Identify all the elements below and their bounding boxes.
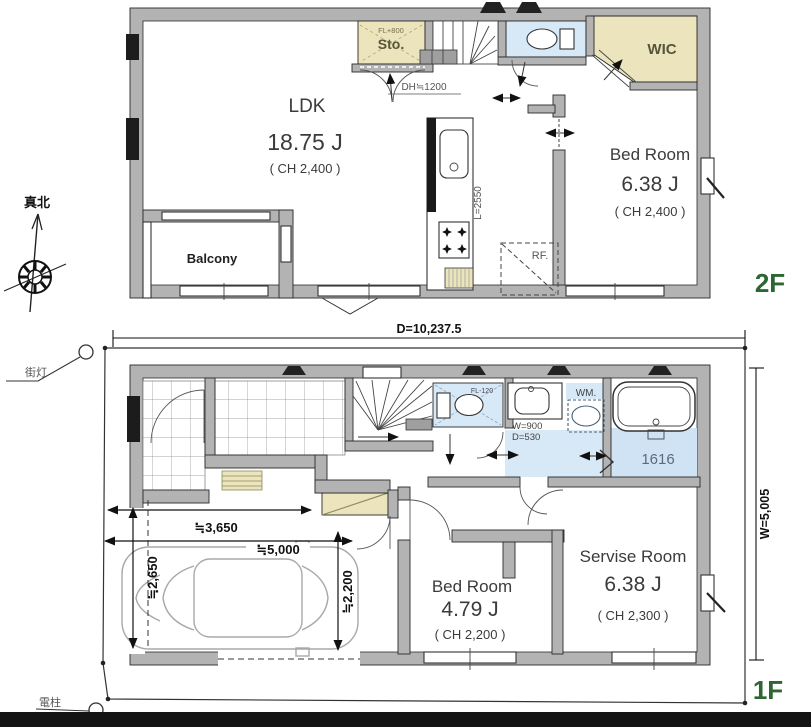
floor-1-plan: FL-120 W=900 D=530 WM. 1616 — [105, 365, 783, 705]
wm-label: WM. — [576, 388, 597, 399]
f1-stair-landing — [406, 419, 432, 430]
service-room-size: 6.38 J — [604, 573, 661, 596]
storage-label: Sto. — [378, 36, 404, 52]
kitchen-counter-length: L=2550 — [473, 186, 484, 220]
bottom-bar — [0, 712, 811, 727]
floor-2-plan: LDK 18.75 J ( CH 2,400 ) Bed Room 6.38 J… — [126, 2, 785, 314]
dim-5000-label: ≒5,000 — [256, 542, 299, 557]
entrance-step — [222, 471, 262, 490]
f2-eave-mark — [322, 298, 378, 314]
storage-floor-level: FL+800 — [378, 26, 404, 35]
basin-depth-label: D=530 — [512, 432, 540, 443]
f2-bedroom-name: Bed Room — [610, 145, 690, 164]
ldk-size: 18.75 J — [267, 129, 342, 155]
streetlight-symbol — [6, 345, 93, 381]
toilet-floor-level: FL-120 — [471, 388, 493, 395]
dim-3650-label: ≒3,650 — [194, 520, 237, 535]
floor-plan-drawing: 真北 — [0, 0, 811, 727]
f1-bedroom-ceiling-height: ( CH 2,200 ) — [435, 627, 506, 642]
balcony-label: Balcony — [187, 251, 238, 266]
fridge-label: RF. — [532, 250, 549, 262]
ldk-name: LDK — [289, 96, 326, 117]
washbasin — [508, 383, 562, 419]
ldk-ceiling-height: ( CH 2,400 ) — [270, 161, 341, 176]
f2-kitchen — [427, 118, 473, 290]
f1-bedroom-name: Bed Room — [432, 577, 512, 596]
service-room-name: Servise Room — [580, 547, 687, 566]
streetlight-label: 街灯 — [25, 365, 47, 379]
basin-width-label: W=900 — [512, 421, 542, 432]
floor-2-label: 2F — [755, 268, 785, 298]
roof-vent-icon — [480, 2, 506, 13]
true-north-label: 真北 — [24, 195, 50, 210]
depth-dimension-label: D=10,237.5 — [397, 322, 462, 336]
wic-label: WIC — [647, 41, 676, 58]
width-dimension-label: W=5,005 — [758, 489, 772, 539]
f2-stair-landing — [420, 50, 457, 64]
f2-bedroom-size: 6.38 J — [621, 173, 678, 196]
f2-balcony-railing — [143, 222, 151, 298]
service-room-ceiling-height: ( CH 2,300 ) — [598, 608, 669, 623]
f2-bedroom-ceiling-height: ( CH 2,400 ) — [615, 204, 686, 219]
dim-2650-label: ≒2,650 — [145, 556, 160, 599]
bath-size-label: 1616 — [641, 451, 674, 468]
floor-plan-page: 真北 — [0, 0, 811, 727]
kitchen-stove — [439, 222, 469, 258]
f1-bedroom-size: 4.79 J — [441, 598, 498, 621]
utility-pole-label: 電柱 — [39, 695, 61, 709]
compass: 真北 — [4, 195, 66, 312]
dim-2200-label: ≒2,200 — [340, 570, 355, 613]
roof-vent-icon — [516, 2, 542, 13]
kitchen-counter-edge — [427, 118, 436, 212]
door-height-label: DH≒1200 — [401, 82, 447, 93]
garage-side-opening — [128, 508, 145, 654]
floor-1-label: 1F — [753, 675, 783, 705]
